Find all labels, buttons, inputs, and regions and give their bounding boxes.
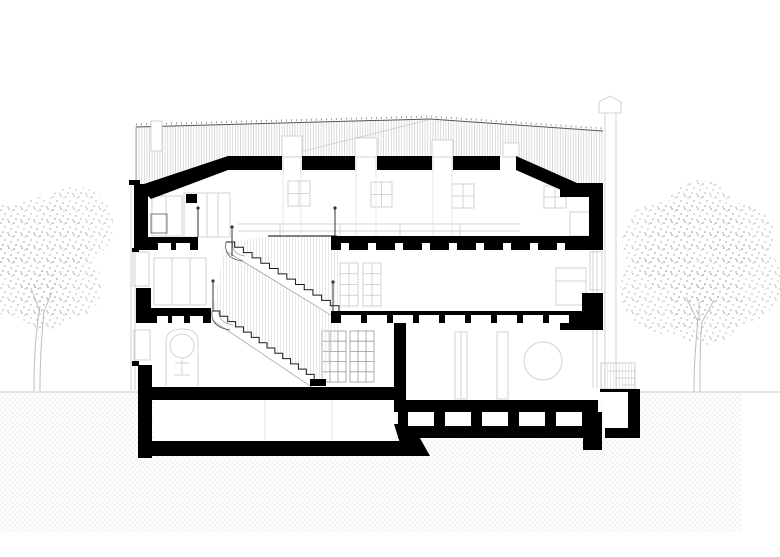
drawing-page	[0, 0, 780, 557]
architectural-section-drawing	[0, 0, 780, 557]
